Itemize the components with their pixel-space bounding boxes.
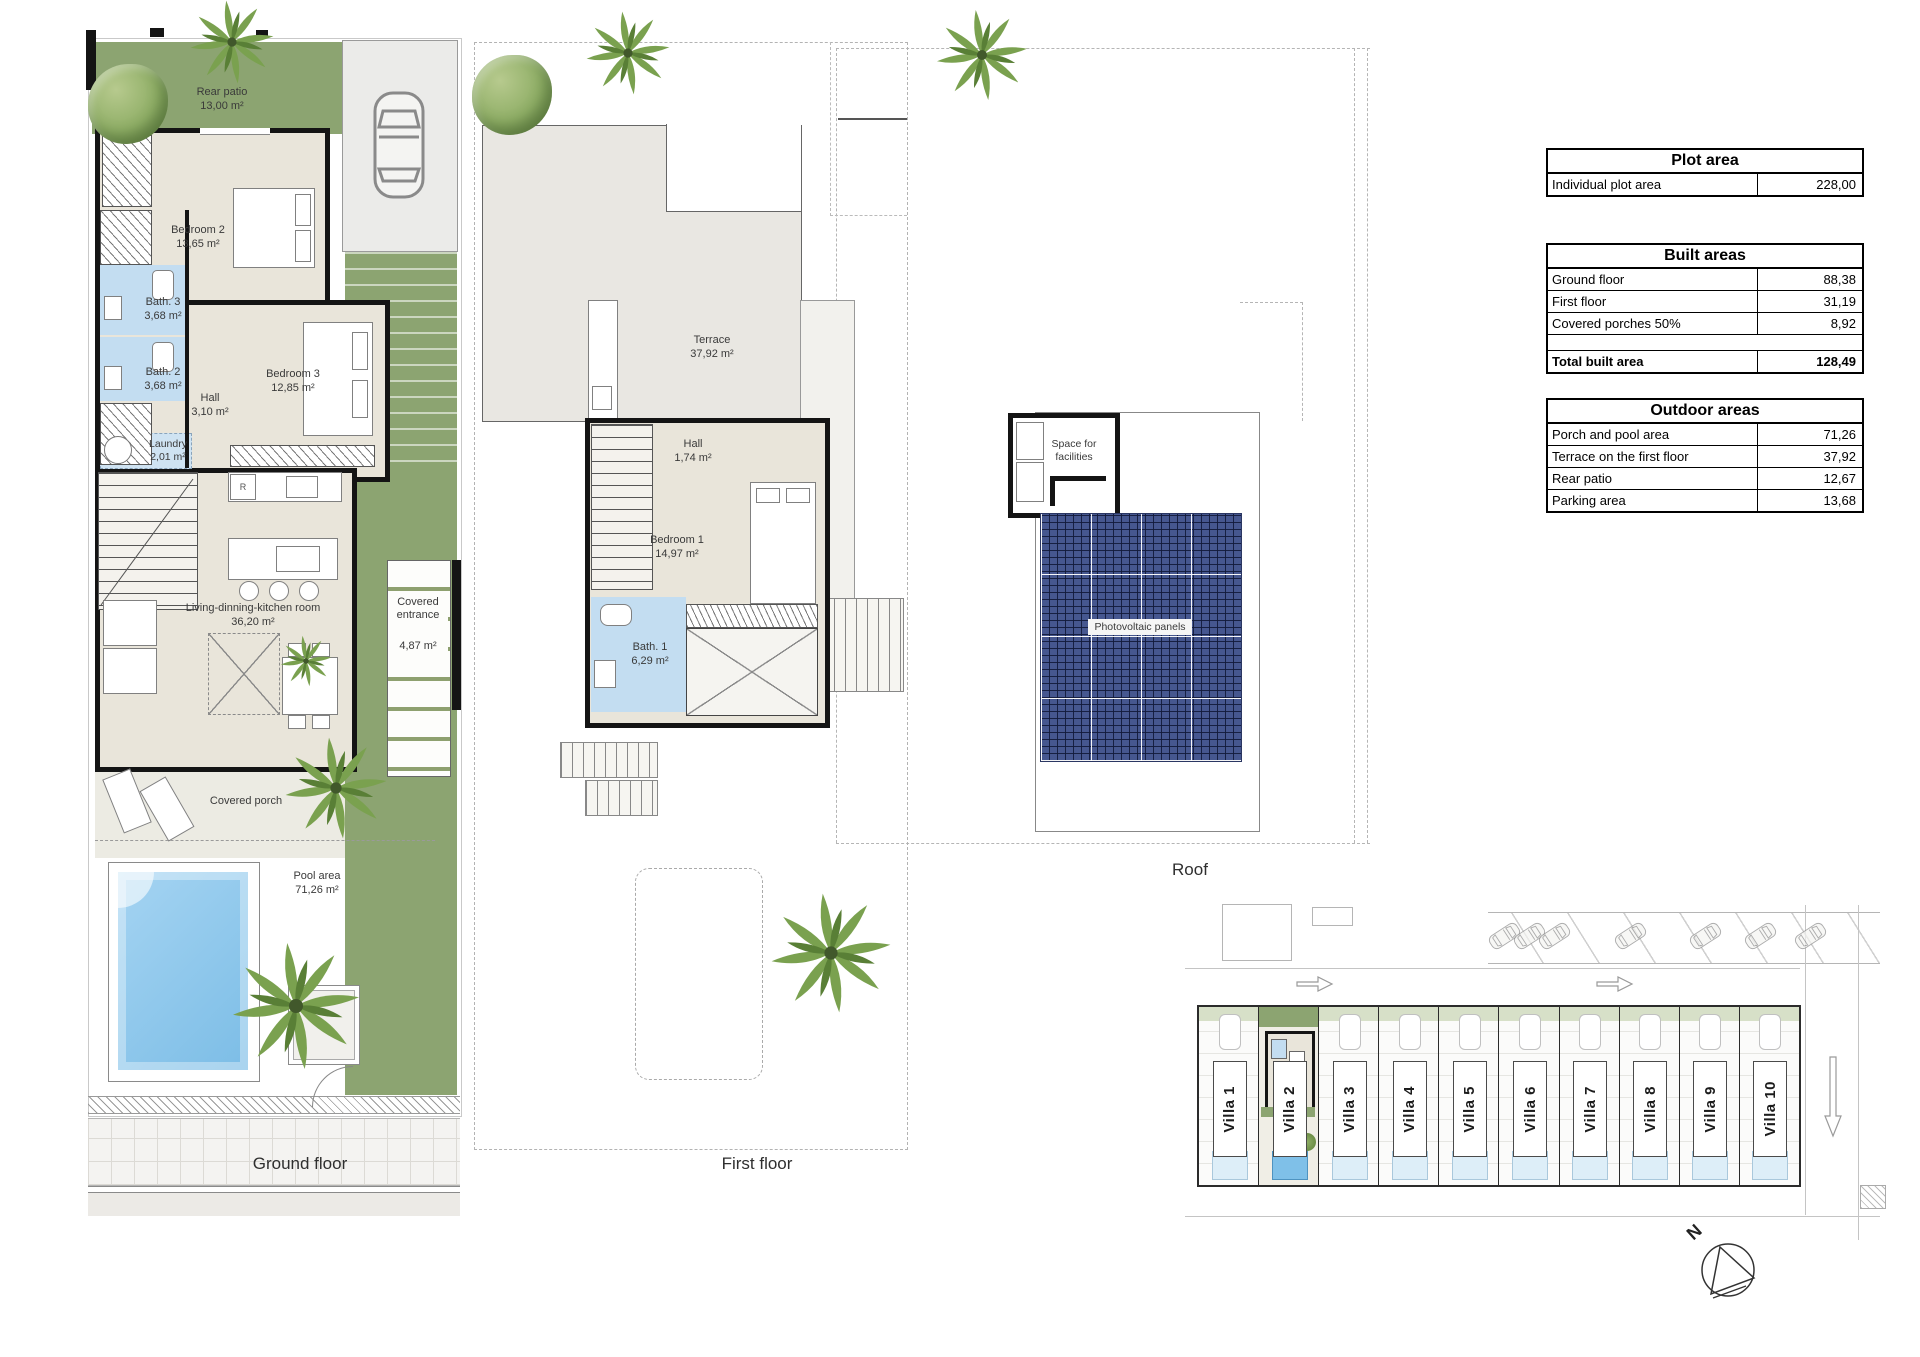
garden-patch xyxy=(1259,1007,1318,1027)
table-row-total: Total built area 128,49 xyxy=(1548,350,1862,372)
shower-icon xyxy=(100,210,152,265)
car-icon xyxy=(1519,1014,1541,1050)
stool-icon xyxy=(239,581,259,601)
car-icon xyxy=(1219,1014,1241,1050)
roof-dash-right-double xyxy=(1354,48,1355,843)
room-label-laundry: Laundry 2,01 m² xyxy=(123,438,213,464)
palm-tree-icon xyxy=(765,887,897,1019)
fridge-label: R xyxy=(240,482,247,492)
villa-strip-2: Villa 2 xyxy=(1259,1007,1319,1185)
room-label-rear-patio: Rear patio 13,00 m² xyxy=(172,86,272,114)
terrace-notch xyxy=(666,124,801,212)
table-row-empty xyxy=(1548,334,1862,350)
table-row: First floor 31,19 xyxy=(1548,290,1862,312)
car-icon xyxy=(371,86,427,204)
toilet-icon xyxy=(600,604,632,626)
wardrobe-icon xyxy=(230,445,375,467)
pillow-icon xyxy=(352,332,368,370)
ground-floor-plan: R Covered entrance 4,87 m² xyxy=(0,0,480,1230)
staircase xyxy=(591,424,653,590)
villa-label-4: Villa 4 xyxy=(1393,1061,1427,1157)
mini-room xyxy=(1271,1039,1287,1059)
palm-tree-icon xyxy=(280,732,392,844)
table-row: Ground floor 88,38 xyxy=(1548,269,1862,290)
fridge-icon: R xyxy=(230,474,256,500)
kerb-line xyxy=(88,1186,460,1193)
car-icon xyxy=(1759,1014,1781,1050)
room-label-covered-porch: Covered porch xyxy=(186,795,306,809)
table-row: Terrace on the first floor 37,92 xyxy=(1548,445,1862,467)
room-label-covered-entrance: Covered entrance xyxy=(388,596,448,621)
chair-icon xyxy=(312,715,330,729)
plan-title-first-floor: First floor xyxy=(657,1154,857,1174)
equipment-icon xyxy=(1016,422,1044,460)
villa-strips-block: Villa 1 Villa 2 Villa 3 xyxy=(1197,1005,1801,1187)
plan-title-ground-floor: Ground floor xyxy=(180,1154,420,1174)
car-icon xyxy=(1339,1014,1361,1050)
roof-dash-step xyxy=(1240,302,1303,421)
table-title: Plot area xyxy=(1548,150,1862,174)
floorplan-sheet: R Covered entrance 4,87 m² xyxy=(0,0,1920,1357)
wall-stub xyxy=(150,28,164,37)
room-label-hall-ff: Hall 1,74 m² xyxy=(648,438,738,466)
equipment-icon xyxy=(1016,462,1044,502)
room-label-hall-gf: Hall 3,10 m² xyxy=(165,392,255,420)
car-icon xyxy=(1459,1014,1481,1050)
void-opening xyxy=(686,628,818,716)
plot-area-table: Plot area Individual plot area 228,00 xyxy=(1546,148,1864,197)
room-label-living: Living-dinning-kitchen room 36,20 m² xyxy=(143,602,363,630)
direction-arrow-icon xyxy=(1296,976,1334,992)
room-area-covered-entrance: 4,87 m² xyxy=(388,640,448,654)
facilities-inner-wall xyxy=(1050,476,1055,506)
room-label-bedroom1: Bedroom 1 14,97 m² xyxy=(627,534,727,562)
pool-outline-dashed xyxy=(635,868,763,1080)
stool-icon xyxy=(299,581,319,601)
villa-label-3: Villa 3 xyxy=(1333,1061,1367,1157)
facilities-inner-wall xyxy=(1050,476,1106,481)
car-icon xyxy=(1699,1014,1721,1050)
table-row: Rear patio 12,67 xyxy=(1548,467,1862,489)
wall-segment xyxy=(452,560,461,710)
label-photovoltaic-panels: Photovoltaic panels xyxy=(1088,619,1192,635)
built-areas-table: Built areas Ground floor 88,38 First flo… xyxy=(1546,243,1864,374)
covered-entrance-walkway xyxy=(387,560,451,777)
villa-strip-10: Villa 10 xyxy=(1740,1007,1799,1185)
hatch-square xyxy=(1860,1185,1886,1209)
table-row: Porch and pool area 71,26 xyxy=(1548,424,1862,445)
staircase xyxy=(98,472,198,610)
plan-title-roof: Roof xyxy=(1120,860,1260,880)
roof-dash-top xyxy=(836,48,1370,49)
room-label-bedroom3: Bedroom 3 12,85 m² xyxy=(238,368,348,396)
access-road-line xyxy=(1185,968,1800,969)
villa-strip-4: Villa 4 xyxy=(1379,1007,1439,1185)
pillow-icon xyxy=(352,380,368,418)
stair-direction-line xyxy=(99,473,197,609)
room-label-pool-area: Pool area 71,26 m² xyxy=(267,870,367,898)
palm-tree-icon xyxy=(186,0,278,88)
room-label-bath2: Bath. 2 3,68 m² xyxy=(118,366,208,394)
side-road-line xyxy=(1858,905,1859,1240)
villa-label-7: Villa 7 xyxy=(1573,1061,1607,1157)
roof-dash-bottom xyxy=(836,843,1370,844)
table-row: Individual plot area 228,00 xyxy=(1548,174,1862,195)
road-arrow-down-icon xyxy=(1824,1056,1842,1138)
car-icon xyxy=(1399,1014,1421,1050)
exterior-stair xyxy=(560,742,658,778)
site-shape xyxy=(1222,904,1292,961)
roof-dash-right-double xyxy=(1367,48,1368,843)
exterior-stair xyxy=(822,598,904,692)
north-compass: N xyxy=(1682,1218,1772,1308)
pillow-icon xyxy=(786,488,810,503)
pillow-icon xyxy=(756,488,780,503)
label-space-for-facilities: Space for facilities xyxy=(1044,438,1104,463)
table-row: Parking area 13,68 xyxy=(1548,489,1862,511)
wardrobe-icon xyxy=(102,135,152,207)
car-icon xyxy=(1639,1014,1661,1050)
terrace-door-gap xyxy=(200,128,270,135)
villa-strip-3: Villa 3 xyxy=(1319,1007,1379,1185)
site-shape xyxy=(1312,907,1353,926)
hob-icon xyxy=(286,476,318,498)
direction-arrow-icon xyxy=(1596,976,1634,992)
hatched-strip xyxy=(686,604,818,628)
villa-strip-8: Villa 8 xyxy=(1620,1007,1680,1185)
stool-icon xyxy=(269,581,289,601)
outdoor-areas-table: Outdoor areas Porch and pool area 71,26 … xyxy=(1546,398,1864,513)
villa-label-8: Villa 8 xyxy=(1633,1061,1667,1157)
car-icon xyxy=(1579,1014,1601,1050)
table-title: Outdoor areas xyxy=(1548,400,1862,424)
sink-icon xyxy=(592,386,612,410)
bottom-road-line xyxy=(1185,1216,1880,1217)
palm-tree-icon xyxy=(226,936,366,1076)
room-label-bath1: Bath. 1 6,29 m² xyxy=(600,641,700,669)
island-cabinet xyxy=(276,546,320,572)
table-row: Covered porches 50% 8,92 xyxy=(1548,312,1862,334)
villa-strip-6: Villa 6 xyxy=(1499,1007,1559,1185)
sidewalk xyxy=(88,1118,460,1186)
plot-bottom-hatch xyxy=(88,1096,460,1114)
villa-label-6: Villa 6 xyxy=(1513,1061,1547,1157)
chair-icon xyxy=(288,715,306,729)
plot-corner-dashed xyxy=(830,42,907,216)
villa-strip-7: Villa 7 xyxy=(1560,1007,1620,1185)
villa-strip-9: Villa 9 xyxy=(1680,1007,1740,1185)
villa-label-9: Villa 9 xyxy=(1693,1061,1727,1157)
pillow-icon xyxy=(295,230,311,262)
villa-label-5: Villa 5 xyxy=(1453,1061,1487,1157)
road-band xyxy=(88,1192,460,1216)
room-label-bedroom2: Bedroom 2 13,65 m² xyxy=(148,224,248,252)
rug xyxy=(208,633,280,715)
pillow-icon xyxy=(295,194,311,226)
villa-label-10: Villa 10 xyxy=(1753,1061,1787,1157)
side-road-line xyxy=(1805,905,1806,1215)
palm-tree-icon xyxy=(278,633,334,689)
villa-label-1: Villa 1 xyxy=(1213,1061,1247,1157)
palm-tree-icon xyxy=(582,7,674,99)
villa-strip-1: Villa 1 xyxy=(1199,1007,1259,1185)
room-label-terrace: Terrace 37,92 m² xyxy=(652,334,772,362)
palm-tree-icon xyxy=(932,5,1032,105)
villa-strip-5: Villa 5 xyxy=(1439,1007,1499,1185)
photovoltaic-panels xyxy=(1040,513,1242,762)
room-label-bath3: Bath. 3 3,68 m² xyxy=(118,296,208,324)
exterior-stair xyxy=(585,780,658,816)
villa-label-2: Villa 2 xyxy=(1273,1061,1307,1157)
sofa-icon xyxy=(103,648,157,694)
table-title: Built areas xyxy=(1548,245,1862,269)
